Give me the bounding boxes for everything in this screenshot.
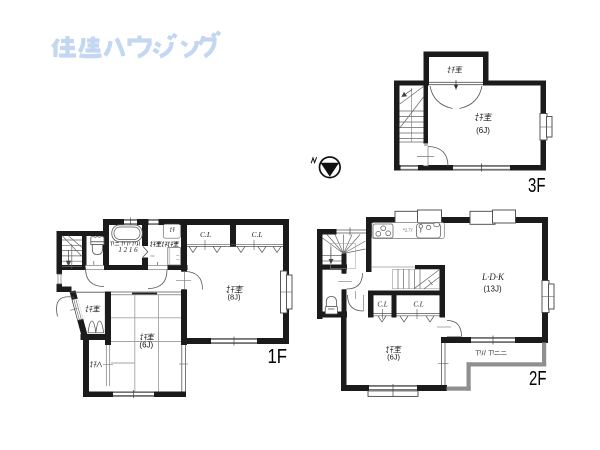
svg-text:1 2 1 6: 1 2 1 6 [118,246,138,254]
svg-text:(6J): (6J) [476,126,490,135]
svg-text:1F: 1F [268,346,288,368]
svg-text:3F: 3F [528,175,546,197]
svg-text:L·D·K: L·D·K [481,272,505,282]
svg-text:*2.7J: *2.7J [403,228,414,233]
svg-text:2F: 2F [529,368,547,390]
svg-text:C.L: C.L [413,301,423,309]
svg-text:(8J): (8J) [228,293,241,302]
svg-text:(6J): (6J) [387,353,400,362]
svg-text:C.L: C.L [251,230,262,239]
svg-text:(13J): (13J) [483,285,502,294]
svg-text:(6J): (6J) [139,341,153,350]
svg-text:C.L: C.L [377,301,387,309]
svg-text:C.L: C.L [200,230,211,239]
